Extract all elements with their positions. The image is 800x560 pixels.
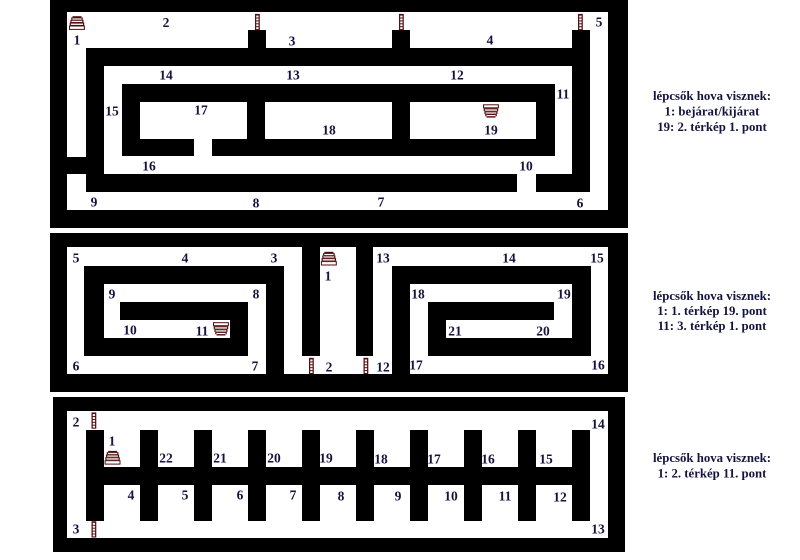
svg-text:13: 13: [376, 250, 390, 265]
svg-text:1: 1: [325, 268, 332, 283]
svg-text:10: 10: [444, 488, 458, 503]
svg-text:4: 4: [487, 32, 494, 47]
svg-text:7: 7: [252, 358, 259, 373]
svg-text:3: 3: [289, 33, 296, 48]
svg-text:20: 20: [267, 450, 281, 465]
svg-text:lépcsők hova visznek:: lépcsők hova visznek:: [653, 289, 771, 303]
svg-text:15: 15: [105, 103, 119, 118]
svg-text:17: 17: [427, 451, 441, 466]
svg-text:16: 16: [481, 451, 495, 466]
svg-text:18: 18: [374, 451, 388, 466]
svg-text:lépcsők hova visznek:: lépcsők hova visznek:: [653, 451, 771, 465]
svg-text:2: 2: [73, 414, 80, 429]
svg-text:15: 15: [539, 451, 553, 466]
svg-text:21: 21: [448, 323, 462, 338]
svg-text:13: 13: [591, 521, 605, 536]
svg-text:8: 8: [253, 195, 260, 210]
svg-text:20: 20: [536, 323, 550, 338]
svg-text:22: 22: [159, 450, 173, 465]
svg-text:7: 7: [378, 194, 385, 209]
svg-text:1: 1: [74, 32, 81, 47]
svg-text:19: 19: [557, 286, 571, 301]
svg-text:3: 3: [271, 250, 278, 265]
svg-text:6: 6: [577, 195, 584, 210]
svg-text:16: 16: [591, 357, 605, 372]
svg-text:19: 19: [319, 450, 333, 465]
svg-text:6: 6: [237, 487, 244, 502]
svg-text:lépcsők hova visznek:: lépcsők hova visznek:: [653, 89, 771, 103]
svg-text:14: 14: [159, 67, 173, 82]
svg-text:11: 11: [196, 323, 209, 338]
svg-text:12: 12: [450, 67, 464, 82]
svg-text:11: 11: [499, 488, 512, 503]
svg-text:14: 14: [502, 250, 516, 265]
svg-text:16: 16: [142, 158, 156, 173]
svg-text:1: bejárat/kijárat: 1: bejárat/kijárat: [665, 105, 761, 119]
svg-text:12: 12: [376, 359, 390, 374]
svg-text:4: 4: [128, 487, 135, 502]
svg-text:17: 17: [409, 357, 423, 372]
svg-text:19: 2. térkép 1. pont: 19: 2. térkép 1. pont: [657, 120, 767, 134]
svg-text:9: 9: [395, 488, 402, 503]
svg-text:2: 2: [163, 15, 170, 30]
svg-text:1: 1. térkép 19. pont: 1: 1. térkép 19. pont: [657, 304, 767, 318]
svg-text:5: 5: [182, 487, 189, 502]
svg-text:11: 3. térkép 1. pont: 11: 3. térkép 1. pont: [658, 319, 768, 333]
svg-text:13: 13: [286, 67, 300, 82]
svg-text:2: 2: [326, 359, 333, 374]
svg-text:17: 17: [194, 102, 208, 117]
svg-text:11: 11: [557, 86, 570, 101]
svg-text:5: 5: [596, 14, 603, 29]
svg-text:18: 18: [411, 286, 425, 301]
svg-text:3: 3: [73, 521, 80, 536]
svg-text:12: 12: [553, 489, 567, 504]
svg-text:1: 2. térkép 11. pont: 1: 2. térkép 11. pont: [658, 467, 768, 481]
svg-text:18: 18: [322, 122, 336, 137]
svg-text:8: 8: [338, 488, 345, 503]
svg-text:19: 19: [484, 122, 498, 137]
svg-text:10: 10: [123, 322, 137, 337]
svg-text:14: 14: [591, 416, 605, 431]
svg-text:21: 21: [213, 450, 227, 465]
svg-text:5: 5: [73, 250, 80, 265]
svg-text:6: 6: [73, 358, 80, 373]
svg-text:8: 8: [253, 286, 260, 301]
svg-text:10: 10: [519, 158, 533, 173]
svg-text:7: 7: [290, 487, 297, 502]
svg-text:15: 15: [590, 250, 604, 265]
svg-text:1: 1: [109, 433, 116, 448]
svg-text:9: 9: [109, 286, 116, 301]
svg-text:4: 4: [182, 250, 189, 265]
svg-text:9: 9: [91, 194, 98, 209]
